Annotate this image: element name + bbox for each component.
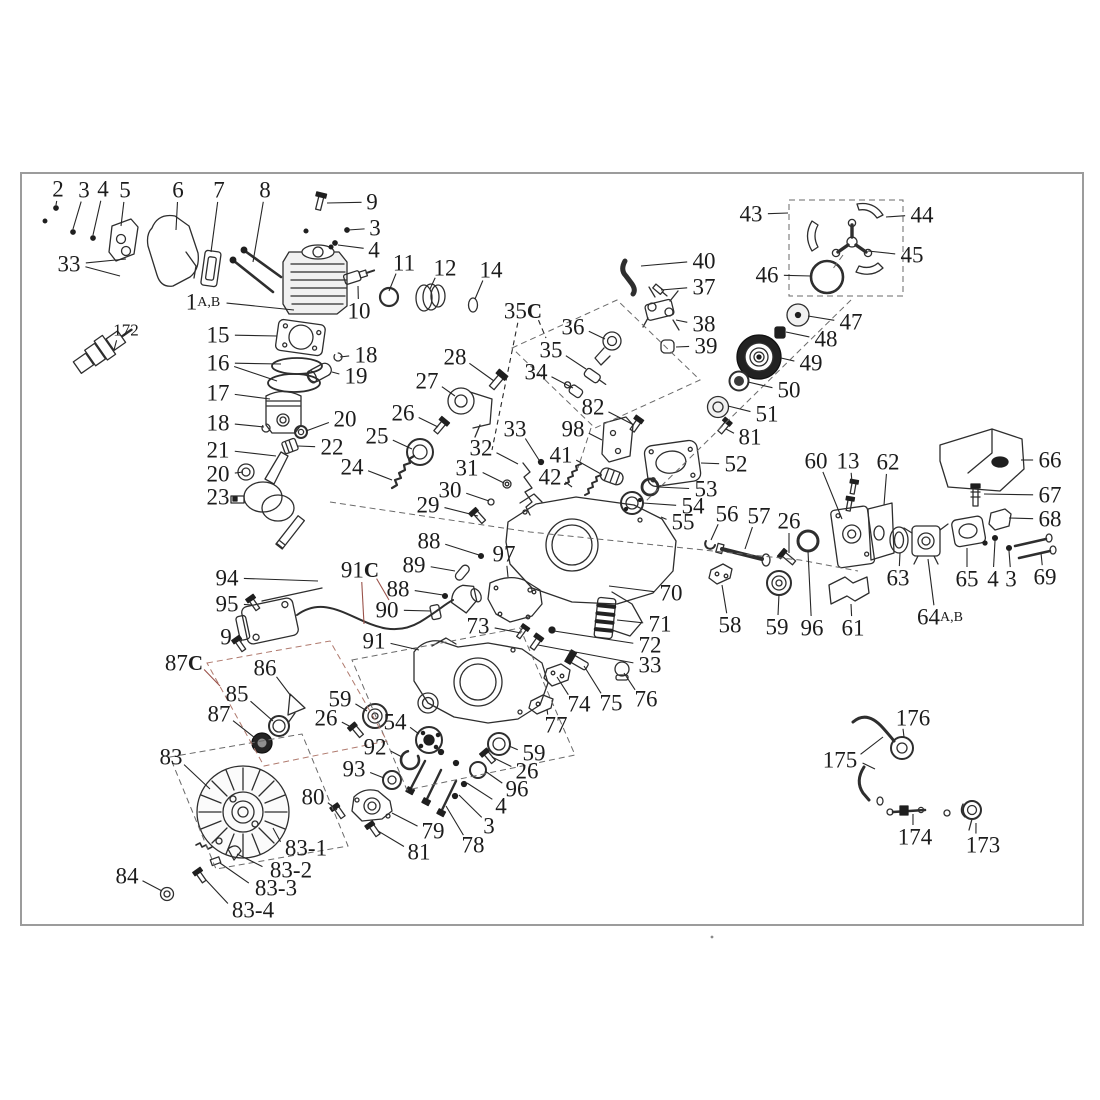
leader-line-16 bbox=[234, 367, 277, 381]
part-label-26: 26 bbox=[392, 401, 415, 426]
part-label-36: 36 bbox=[562, 315, 585, 340]
leader-line-50 bbox=[748, 382, 772, 388]
part-label-1A,B: 1A,B bbox=[186, 290, 220, 315]
leader-line-175 bbox=[861, 737, 883, 754]
part-label-70: 70 bbox=[660, 581, 683, 606]
leader-line-47 bbox=[808, 316, 834, 320]
bracket-58-drawing bbox=[709, 564, 732, 584]
leader-line-3 bbox=[459, 795, 482, 817]
leader-line-38 bbox=[676, 320, 687, 322]
leader-line-33 bbox=[525, 438, 539, 460]
leader-line-7 bbox=[211, 202, 218, 252]
leader-line-32 bbox=[496, 453, 518, 464]
leader-line-90 bbox=[404, 610, 431, 611]
leader-line-81 bbox=[726, 429, 734, 433]
part-label-9: 9 bbox=[366, 190, 378, 215]
part-label-55: 55 bbox=[672, 510, 695, 535]
leader-line-69 bbox=[1041, 553, 1042, 565]
part-label-26: 26 bbox=[778, 509, 801, 534]
part-label-66: 66 bbox=[1039, 448, 1062, 473]
stray-speck bbox=[711, 936, 714, 939]
part-label-3: 3 bbox=[78, 178, 90, 203]
leader-line-9 bbox=[327, 202, 362, 203]
leader-line-48 bbox=[786, 332, 809, 337]
leader-line-76 bbox=[624, 673, 635, 690]
leader-line-4 bbox=[338, 245, 364, 248]
leader-line-3 bbox=[1009, 551, 1010, 567]
part-label-75: 75 bbox=[600, 691, 623, 716]
part-label-65: 65 bbox=[956, 567, 979, 592]
spacer-65-drawing bbox=[951, 515, 986, 547]
part-label-77: 77 bbox=[545, 713, 568, 738]
part-label-12: 12 bbox=[434, 256, 457, 281]
leader-line-43 bbox=[768, 213, 788, 214]
part-label-28: 28 bbox=[444, 345, 467, 370]
part-label-29: 29 bbox=[417, 493, 440, 518]
leader-line-14 bbox=[475, 281, 483, 299]
leader-line-24 bbox=[368, 471, 392, 480]
leader-line-60 bbox=[823, 472, 842, 519]
part-label-16: 16 bbox=[207, 351, 230, 376]
washer-14-drawing bbox=[469, 298, 478, 312]
bearing-54-drawing bbox=[621, 492, 643, 514]
part-label-15: 15 bbox=[207, 323, 230, 348]
leader-line-49 bbox=[781, 358, 794, 361]
part-label-80: 80 bbox=[302, 785, 325, 810]
part-label-73: 73 bbox=[467, 614, 490, 639]
part-label-5: 5 bbox=[119, 178, 131, 203]
part-label-78: 78 bbox=[462, 833, 485, 858]
part-label-94: 94 bbox=[216, 566, 240, 591]
collar-63-drawing bbox=[890, 527, 908, 553]
leader-line-8 bbox=[253, 202, 263, 262]
part-label-17: 17 bbox=[207, 381, 230, 406]
part-label-61: 61 bbox=[842, 616, 865, 641]
part-label-3: 3 bbox=[1005, 567, 1017, 592]
leader-line-40 bbox=[641, 262, 687, 266]
part-label-59: 59 bbox=[766, 615, 789, 640]
part-label-26: 26 bbox=[315, 706, 338, 731]
leader-line-85 bbox=[251, 701, 273, 721]
leader-line-91 bbox=[391, 643, 419, 650]
leader-line-3 bbox=[73, 202, 81, 229]
leader-line-35 bbox=[566, 356, 586, 369]
part-label-46: 46 bbox=[756, 263, 779, 288]
part-label-67: 67 bbox=[1039, 483, 1062, 508]
leader-line-54 bbox=[410, 727, 419, 734]
leader-line-59 bbox=[778, 594, 779, 615]
leader-line-95 bbox=[244, 604, 252, 605]
part-label-3: 3 bbox=[483, 814, 495, 839]
part-label-43: 43 bbox=[740, 202, 763, 227]
leader-line-54 bbox=[643, 503, 676, 505]
part-label-33: 33 bbox=[504, 417, 527, 442]
part-label-84: 84 bbox=[116, 864, 140, 889]
part-label-90: 90 bbox=[376, 598, 399, 623]
gasket-62-drawing bbox=[868, 503, 894, 560]
part-label-95: 95 bbox=[216, 592, 239, 617]
part-label-91: 91 bbox=[363, 629, 386, 654]
part-label-58: 58 bbox=[719, 613, 742, 638]
part-label-4: 4 bbox=[97, 177, 109, 202]
part-label-173: 173 bbox=[966, 833, 1001, 858]
part-label-97: 97 bbox=[493, 542, 516, 567]
part-label-10: 10 bbox=[348, 299, 371, 324]
part-label-14: 14 bbox=[480, 258, 504, 283]
part-label-33: 33 bbox=[639, 653, 662, 678]
carburetor-64-drawing bbox=[904, 524, 948, 564]
leader-line-70 bbox=[609, 586, 654, 592]
part-label-62: 62 bbox=[877, 450, 900, 475]
leader-line-64 bbox=[928, 559, 934, 605]
leader-line-94 bbox=[244, 578, 318, 581]
part-label-45: 45 bbox=[901, 243, 924, 268]
leader-line-46 bbox=[784, 275, 811, 276]
part-label-60: 60 bbox=[805, 449, 828, 474]
part-label-176: 176 bbox=[896, 706, 931, 731]
part-label-11: 11 bbox=[393, 251, 415, 276]
part-label-82: 82 bbox=[582, 395, 605, 420]
pulley-59-drawing bbox=[767, 571, 791, 595]
leader-line-81 bbox=[378, 831, 404, 847]
leader-line-82 bbox=[608, 412, 634, 425]
stud-42b-drawing bbox=[585, 475, 601, 495]
part-label-47: 47 bbox=[840, 310, 863, 335]
airbox-bolt-67-drawing bbox=[971, 484, 980, 506]
leader-line-71 bbox=[617, 620, 643, 623]
leader-line-26 bbox=[492, 757, 511, 767]
leader-line-68 bbox=[1009, 518, 1033, 519]
part-label-50: 50 bbox=[778, 378, 801, 403]
part-label-48: 48 bbox=[815, 327, 838, 352]
part-label-40: 40 bbox=[693, 249, 716, 274]
part-label-4: 4 bbox=[368, 238, 380, 263]
muffler-fasteners-drawing bbox=[43, 206, 281, 292]
exploded-parts-diagram: 2345678934331A,B101721112141516171819182… bbox=[0, 0, 1100, 1100]
part-label-39: 39 bbox=[695, 334, 718, 359]
leader-line-41 bbox=[576, 460, 601, 474]
airbox-66-drawing bbox=[940, 429, 1024, 491]
part-label-92: 92 bbox=[364, 735, 387, 760]
part-label-91C: 91C bbox=[341, 558, 379, 583]
part-label-174: 174 bbox=[898, 825, 933, 850]
leader-line-33 bbox=[86, 259, 126, 263]
leader-line-62 bbox=[884, 474, 886, 505]
leader-line-61 bbox=[851, 604, 852, 616]
leader-line-84 bbox=[143, 881, 162, 891]
ring-85-drawing bbox=[269, 716, 289, 736]
leader-line-88 bbox=[445, 544, 479, 555]
leader-line-4 bbox=[994, 541, 995, 567]
leader-line-18 bbox=[235, 424, 264, 427]
leader-line-21 bbox=[235, 451, 276, 456]
leader-line-19 bbox=[332, 372, 339, 374]
part-label-20: 20 bbox=[334, 407, 357, 432]
clip-56-drawing bbox=[705, 541, 715, 549]
seal-25-drawing bbox=[407, 439, 433, 465]
spacer-68-drawing bbox=[989, 509, 1011, 530]
leader-line-31 bbox=[483, 473, 504, 483]
part-label-81: 81 bbox=[408, 840, 431, 865]
leader-line-44 bbox=[886, 216, 905, 217]
part-label-64A,B: 64A,B bbox=[917, 605, 963, 630]
leader-line-73 bbox=[495, 628, 521, 633]
ignition-coil-94-drawing bbox=[234, 580, 485, 647]
part-label-20: 20 bbox=[207, 462, 230, 487]
leader-line-63 bbox=[899, 553, 900, 566]
part-label-59: 59 bbox=[523, 741, 546, 766]
part-label-19: 19 bbox=[345, 364, 368, 389]
part-label-30: 30 bbox=[439, 478, 462, 503]
part-label-98: 98 bbox=[562, 417, 585, 442]
crankcase-left-drawing bbox=[414, 638, 548, 723]
sleeve-41-drawing bbox=[599, 466, 625, 486]
part-label-7: 7 bbox=[213, 178, 225, 203]
part-label-44: 44 bbox=[911, 203, 935, 228]
part-label-32: 32 bbox=[470, 436, 493, 461]
part-label-89: 89 bbox=[403, 553, 426, 578]
part-label-35C: 35C bbox=[504, 299, 542, 324]
part-label-87C: 87C bbox=[165, 651, 203, 676]
leader-line-92 bbox=[391, 751, 402, 757]
leader-line-58 bbox=[722, 585, 727, 613]
grommet-39-drawing bbox=[661, 340, 674, 353]
leader-line-87 bbox=[233, 721, 255, 738]
part-label-88: 88 bbox=[418, 529, 441, 554]
fuel-elbow-40-drawing bbox=[623, 261, 635, 294]
part-label-24: 24 bbox=[341, 455, 365, 480]
leader-line-3 bbox=[348, 229, 365, 230]
leader-line-51 bbox=[728, 406, 750, 412]
part-label-83-4: 83-4 bbox=[232, 898, 275, 923]
leader-line-37 bbox=[661, 288, 687, 290]
leader-line-93 bbox=[370, 772, 384, 778]
leader-line-28 bbox=[469, 363, 494, 381]
part-label-83: 83 bbox=[160, 745, 183, 770]
part-label-81: 81 bbox=[739, 425, 762, 450]
part-label-54: 54 bbox=[384, 710, 408, 735]
part-label-42: 42 bbox=[539, 465, 562, 490]
leader-line-91 bbox=[362, 582, 364, 624]
part-label-175: 175 bbox=[823, 748, 858, 773]
part-label-68: 68 bbox=[1039, 507, 1062, 532]
parts-diagram-page: 2345678934331A,B101721112141516171819182… bbox=[0, 0, 1100, 1100]
part-label-8: 8 bbox=[259, 178, 271, 203]
part-label-25: 25 bbox=[366, 424, 389, 449]
leader-line-4 bbox=[93, 201, 101, 235]
leader-line-78 bbox=[446, 806, 463, 835]
leader-line-83-4 bbox=[206, 880, 228, 904]
leader-line-15 bbox=[235, 335, 277, 336]
leader-line-79 bbox=[392, 813, 418, 826]
part-label-76: 76 bbox=[635, 687, 658, 712]
seal-96-drawing bbox=[798, 531, 818, 551]
part-label-49: 49 bbox=[800, 351, 823, 376]
guide-plate-98-drawing bbox=[602, 417, 633, 462]
part-label-63: 63 bbox=[887, 566, 910, 591]
leader-line-96 bbox=[485, 771, 502, 783]
leader-line-97 bbox=[507, 566, 508, 577]
part-label-37: 37 bbox=[693, 275, 716, 300]
part-label-2: 2 bbox=[52, 177, 64, 202]
leader-line-75 bbox=[584, 666, 601, 693]
bracket-77-drawing bbox=[529, 695, 553, 714]
leader-line-22 bbox=[298, 446, 315, 447]
circlip-92-drawing bbox=[401, 751, 419, 769]
gasket-97-drawing bbox=[488, 578, 542, 622]
leader-line-96 bbox=[808, 551, 811, 616]
part-label-4: 4 bbox=[987, 567, 999, 592]
clip-86-drawing bbox=[288, 694, 305, 715]
part-label-96: 96 bbox=[801, 616, 824, 641]
part-label-172: 172 bbox=[113, 321, 139, 340]
leader-line-33 bbox=[538, 645, 633, 663]
part-label-9: 9 bbox=[220, 625, 232, 650]
part-label-18: 18 bbox=[207, 411, 230, 436]
leader-line-53 bbox=[658, 487, 689, 489]
flywheel-83-drawing bbox=[197, 766, 289, 858]
leader-line-88 bbox=[415, 591, 443, 595]
part-label-6: 6 bbox=[172, 178, 184, 203]
leader-line-26 bbox=[419, 417, 438, 427]
leader-line-6 bbox=[176, 202, 177, 230]
leader-line-33 bbox=[85, 267, 120, 276]
leader-line-17 bbox=[235, 394, 270, 399]
part-label-87: 87 bbox=[208, 702, 231, 727]
spark-plug-drawing bbox=[343, 266, 376, 285]
handle-kit-drawing bbox=[853, 717, 981, 830]
leader-line-86 bbox=[276, 677, 291, 696]
part-label-21: 21 bbox=[207, 438, 230, 463]
leader-line-4 bbox=[467, 783, 492, 799]
part-label-33: 33 bbox=[58, 252, 81, 277]
part-label-74: 74 bbox=[568, 692, 592, 717]
part-label-56: 56 bbox=[716, 502, 739, 527]
part-label-69: 69 bbox=[1034, 565, 1057, 590]
rod-57-drawing bbox=[716, 543, 770, 566]
part-label-34: 34 bbox=[525, 360, 549, 385]
part-label-51: 51 bbox=[756, 402, 779, 427]
leader-line-30 bbox=[466, 493, 489, 501]
leader-line-83 bbox=[184, 765, 210, 789]
leader-line-52 bbox=[701, 463, 719, 464]
leader-line-56 bbox=[711, 524, 718, 540]
part-label-57: 57 bbox=[748, 504, 771, 529]
primer-valves-drawing bbox=[562, 332, 621, 399]
cylinder-drawing bbox=[283, 192, 376, 314]
washer-93-drawing bbox=[383, 771, 401, 789]
leader-line-98 bbox=[589, 433, 602, 440]
part-label-93: 93 bbox=[343, 757, 366, 782]
heat-shield-61-drawing bbox=[829, 577, 869, 604]
part-label-52: 52 bbox=[725, 452, 748, 477]
leader-line-57 bbox=[745, 527, 752, 549]
crankshaft-drawing bbox=[231, 452, 304, 549]
part-label-86: 86 bbox=[254, 656, 277, 681]
part-label-27: 27 bbox=[416, 369, 439, 394]
part-label-23: 23 bbox=[207, 485, 230, 510]
leader-line-89 bbox=[431, 567, 455, 571]
part-label-13: 13 bbox=[837, 449, 860, 474]
leader-line-39 bbox=[676, 346, 689, 347]
leader-line-20 bbox=[306, 423, 329, 431]
leader-line-2 bbox=[56, 201, 57, 205]
leader-line-67 bbox=[984, 494, 1033, 495]
leader-line-36 bbox=[589, 331, 605, 339]
oil-pump-79-drawing bbox=[352, 790, 392, 821]
